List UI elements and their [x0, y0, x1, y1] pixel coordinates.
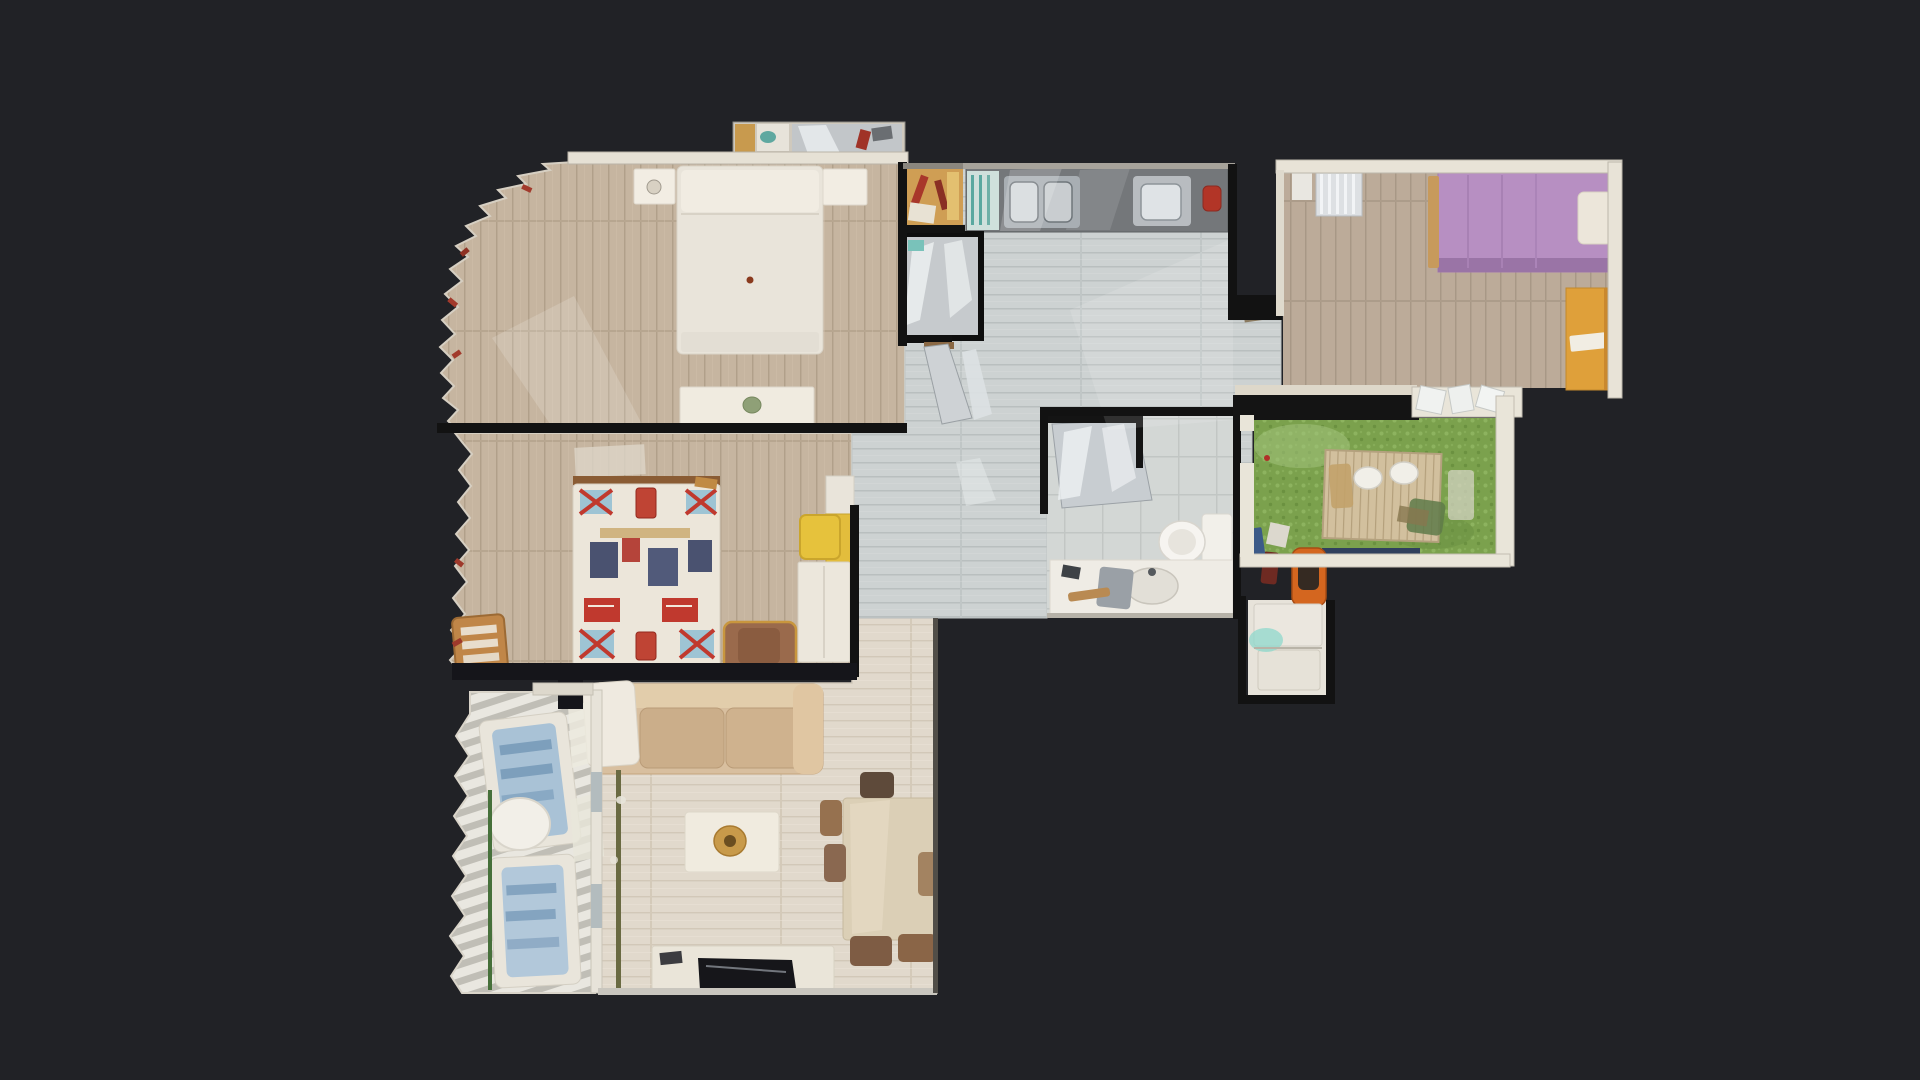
- bedroom2-right-wall: [850, 505, 859, 677]
- master-top-wall: [568, 152, 908, 164]
- floorplan-viewport[interactable]: [0, 0, 1920, 1080]
- kitchen-hob-inner: [1141, 184, 1181, 220]
- bed-collage-tan: [600, 528, 690, 538]
- master-bed-red-spot: [747, 277, 754, 284]
- wardrobe-wall-stub: [900, 335, 952, 343]
- radiator-fin: [1336, 174, 1339, 214]
- bed-collage-navy: [590, 542, 618, 578]
- branch-bloom: [616, 796, 626, 804]
- bedroom2-bottom-wall: [452, 663, 857, 680]
- grass-red-marker: [1264, 455, 1270, 461]
- doorway-lintel-block: [1228, 295, 1282, 320]
- dining-chair: [824, 844, 846, 882]
- nightstand-right: [823, 169, 867, 205]
- radiator-fin: [1320, 174, 1323, 214]
- dish-rack-stripe: [987, 175, 990, 225]
- bed-red-label: [584, 598, 620, 622]
- storage-left-wall: [1238, 596, 1246, 702]
- bedroom2-rug: [574, 444, 645, 478]
- bedroom2-yellow-desk: [800, 515, 840, 559]
- sofa-seat-cushion: [640, 708, 724, 768]
- living-right-edge: [933, 618, 938, 993]
- bed-collage-navy: [648, 548, 678, 586]
- dining-chair: [860, 772, 894, 798]
- terrace-left-wall-upper: [1240, 415, 1254, 431]
- bed-collage-navy: [688, 540, 712, 572]
- master-right-wall: [898, 162, 907, 346]
- branch-bloom: [610, 856, 618, 864]
- tv-flat: [698, 958, 796, 990]
- terrace-plate: [1390, 462, 1418, 484]
- dining-chair: [898, 934, 936, 962]
- mirror-teal-item: [908, 240, 924, 251]
- terrace-glass-mark: [1416, 386, 1446, 415]
- sofa-arm-right: [793, 684, 823, 774]
- storage-box: [1258, 650, 1320, 690]
- bathroom-bottom-edge: [1047, 613, 1233, 618]
- kitchen-top-edge: [963, 163, 1235, 169]
- viewer-stage: [0, 0, 1920, 1080]
- dish-rack-stripe: [971, 175, 974, 225]
- niche-amber-item: [735, 124, 755, 154]
- terrace-bottom-wall: [1240, 554, 1510, 567]
- purple-room-bottom-wall-dark: [1233, 395, 1419, 420]
- purple-room-top-wall: [1276, 160, 1622, 173]
- purple-room-bottom-wall-top: [1235, 385, 1417, 396]
- purple-room-right-wall: [1608, 162, 1622, 398]
- purple-room-white-item: [1292, 172, 1312, 200]
- storage-right-wall: [1326, 600, 1335, 700]
- console-item: [659, 951, 682, 965]
- balcony-round-table: [490, 798, 550, 850]
- toilet-seat: [1168, 529, 1196, 555]
- bed-red-bus: [636, 488, 656, 518]
- purple-bed-pillow: [1578, 192, 1612, 244]
- dining-chair: [850, 936, 892, 966]
- radiator-fin: [1344, 174, 1347, 214]
- storage-bottom-wall: [1238, 695, 1335, 704]
- dining-chair: [820, 800, 842, 836]
- closet-gold-strip: [947, 172, 959, 220]
- bathroom-left-wall: [1040, 412, 1048, 514]
- master-bed-foot-shade: [681, 332, 819, 352]
- master-bedroom2-wall: [437, 423, 907, 433]
- terrace-bench-white: [1448, 470, 1474, 520]
- terrace-left-wall-lower: [1240, 463, 1254, 557]
- hall-cabinet-white: [826, 476, 854, 516]
- niche-dark-item: [871, 126, 893, 142]
- vanity-towel: [1096, 566, 1134, 609]
- bathroom-top-wall: [1040, 407, 1240, 416]
- terrace-chair-tan: [1328, 463, 1353, 508]
- balcony-plant-stem: [488, 790, 492, 990]
- bathroom-right-wall: [1233, 407, 1241, 619]
- purple-bed-frame-end: [1428, 176, 1439, 268]
- living-bottom-wall: [598, 988, 937, 995]
- radiator-fin: [1352, 174, 1355, 214]
- window-glass-break: [591, 884, 602, 928]
- tray-center: [724, 835, 736, 847]
- balcony-top-stub: [533, 683, 593, 695]
- kitchen-red-kettle: [1203, 186, 1221, 211]
- closet-white-cloth: [908, 202, 936, 223]
- toilet-tank: [1202, 514, 1232, 566]
- armchair-cushion: [738, 628, 780, 664]
- terrace-glass-mark: [1448, 384, 1474, 413]
- radiator-fin: [1328, 174, 1331, 214]
- purple-room-left-wall: [1276, 170, 1284, 316]
- closet-bottom-wall: [903, 225, 965, 233]
- bed-red-bus: [636, 632, 656, 660]
- terrace-plate: [1354, 467, 1382, 489]
- bed-red-label: [662, 598, 698, 622]
- bed-collage-red: [622, 538, 640, 562]
- niche-teal-dot: [760, 131, 776, 143]
- dish-rack-stripe: [979, 175, 982, 225]
- window-glass-break: [591, 772, 602, 812]
- vanity-faucet: [1148, 568, 1156, 576]
- master-bed-pillow-band: [681, 170, 819, 212]
- purple-bed-edge: [1438, 258, 1614, 272]
- terrace-right-wall: [1496, 396, 1514, 566]
- closet-top-edge: [903, 163, 965, 169]
- nightstand-lamp: [647, 180, 661, 194]
- balcony-window-wall: [591, 690, 602, 993]
- dresser-plant: [743, 397, 761, 413]
- kitchen-right-wall: [1228, 164, 1237, 314]
